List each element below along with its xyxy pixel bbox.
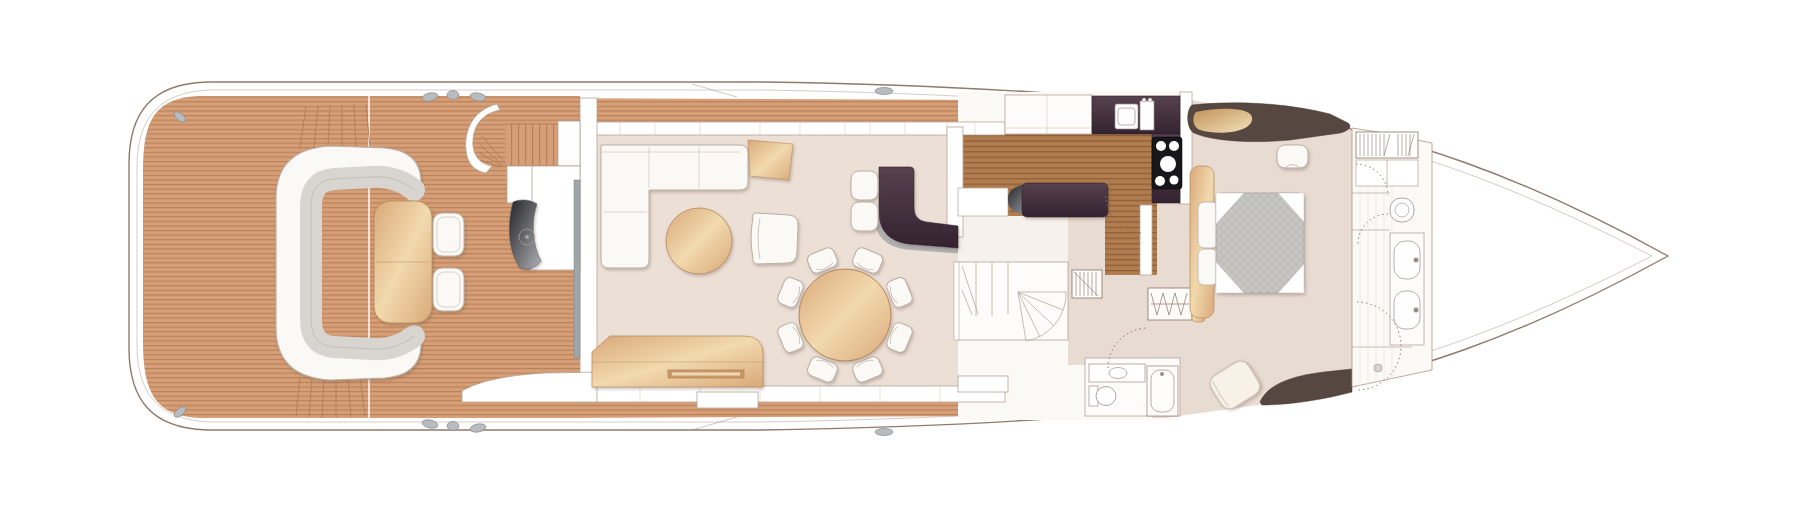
day-head	[1085, 358, 1180, 416]
saloon-bottom-wall	[597, 386, 1005, 402]
forward-bathroom	[1352, 128, 1432, 387]
galley-tap-1	[1142, 98, 1146, 102]
cleat	[875, 429, 893, 436]
corner-end-table	[748, 140, 793, 180]
stair-enclosure-wing	[507, 166, 532, 203]
lobby-wall	[1140, 205, 1152, 275]
side-deck-gate	[697, 392, 758, 408]
coffee-table	[666, 208, 732, 274]
galley-tap-2	[1148, 98, 1152, 102]
cleat	[447, 422, 459, 431]
starboard-walkway-teak	[497, 98, 1005, 124]
bathroom-wc	[1390, 198, 1414, 222]
tv-lift-slot-inner	[672, 373, 740, 376]
bathtub-tap	[1160, 372, 1164, 376]
sideboard	[592, 336, 763, 387]
shower-drain	[1374, 364, 1382, 372]
cleat	[447, 91, 459, 100]
saloon-top-wall	[588, 122, 1005, 135]
galley-side-gate	[958, 376, 1008, 392]
dining-table	[799, 269, 891, 361]
double-bed	[1216, 193, 1304, 293]
bar-stool-2	[851, 202, 878, 231]
pantry-wall	[947, 127, 963, 237]
stair-post-dot	[525, 235, 529, 239]
galley-white-worktop	[958, 188, 1008, 216]
basin-2-tap	[1414, 308, 1419, 313]
cockpit-stool-1	[433, 213, 464, 256]
cockpit-sliding-door	[574, 180, 580, 358]
galley-tap-unit	[1140, 101, 1154, 130]
day-head-wc	[1096, 387, 1116, 406]
stair-rail	[954, 262, 959, 340]
yacht-deck-plan-canvas	[0, 0, 1800, 521]
bedside-unit-2	[1198, 249, 1218, 285]
basin-1-tap	[1414, 258, 1419, 263]
bedside-unit-1	[1198, 202, 1218, 248]
cockpit-stool-2	[433, 268, 464, 311]
stair-enclosure-top	[558, 121, 580, 166]
cleat	[875, 88, 893, 95]
galley-island	[1022, 183, 1108, 217]
galley-white-floor	[958, 216, 1068, 262]
main-deck-plan	[0, 0, 1800, 521]
day-head-vanity	[1089, 364, 1145, 382]
bar-stool-1	[851, 171, 878, 200]
